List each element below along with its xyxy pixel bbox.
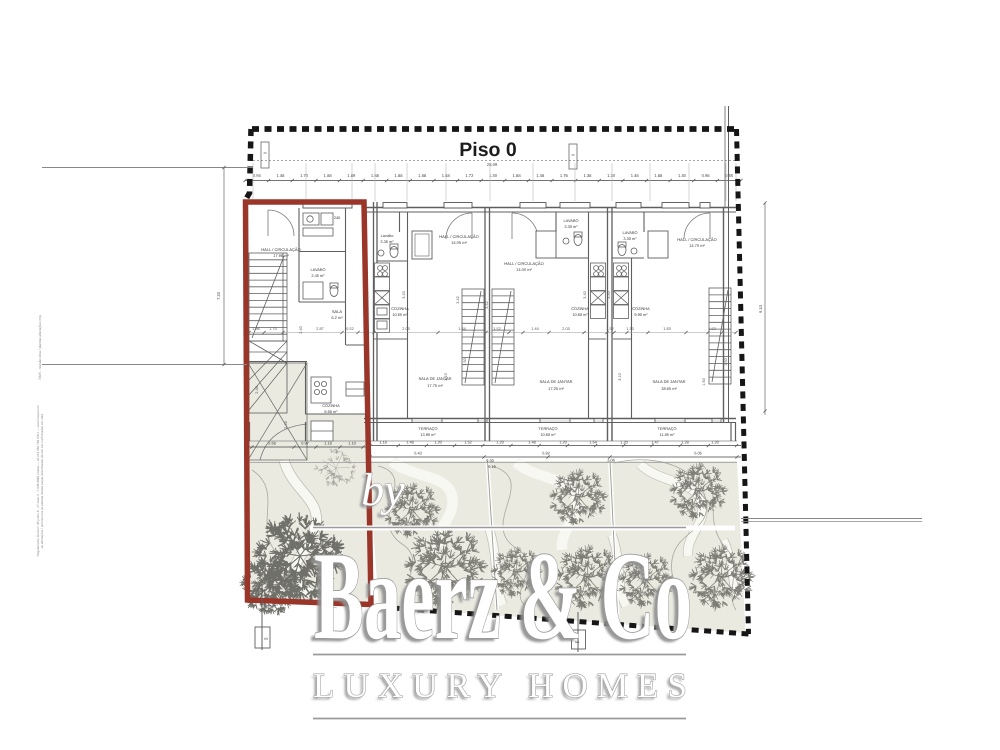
svg-text:9.16: 9.16 [488,464,496,469]
svg-text:1.18: 1.18 [324,441,332,446]
svg-text:1.30: 1.30 [626,327,633,331]
svg-text:3.10: 3.10 [444,373,448,380]
svg-text:LAVABO: LAVABO [564,218,579,223]
svg-text:1.88: 1.88 [395,173,404,178]
svg-text:3.40: 3.40 [607,291,611,298]
svg-text:Baerz & Co: Baerz & Co [314,527,692,666]
svg-text:LAVABO: LAVABO [623,230,638,235]
svg-text:1.20: 1.20 [496,440,504,445]
svg-text:0.52: 0.52 [346,327,353,331]
svg-text:HALL / CIRCULAÇÃO: HALL / CIRCULAÇÃO [504,261,543,266]
svg-text:1.54: 1.54 [589,440,597,445]
svg-text:1.28: 1.28 [681,440,689,445]
svg-text:m: m [572,153,575,157]
svg-text:3.36 m²: 3.36 m² [380,239,394,244]
svg-text:1.30: 1.30 [489,173,498,178]
svg-text:1.38: 1.38 [583,173,592,178]
svg-text:3.40: 3.40 [583,291,587,298]
svg-text:1.47: 1.47 [651,440,659,445]
svg-text:1.88: 1.88 [324,173,333,178]
svg-text:1.83: 1.83 [663,327,670,331]
svg-text:1.20: 1.20 [711,440,719,445]
svg-text:3.42: 3.42 [456,296,460,303]
svg-text:VV: VV [264,637,269,641]
svg-text:14.05 m²: 14.05 m² [451,240,467,245]
svg-text:1.48: 1.48 [536,173,545,178]
svg-text:1.44: 1.44 [458,327,465,331]
svg-text:Lavabo: Lavabo [381,233,394,238]
svg-text:TERRAÇO: TERRAÇO [418,426,437,431]
svg-text:1.89: 1.89 [347,173,356,178]
svg-text:2.45 m²: 2.45 m² [311,273,325,278]
svg-text:as alterações / pormenores às: as alterações / pormenores às plantas de… [40,413,44,548]
svg-text:9.90 m²: 9.90 m² [634,312,648,317]
svg-text:10.60 m²: 10.60 m² [540,432,556,437]
svg-text:2.87: 2.87 [316,327,323,331]
svg-text:1.70: 1.70 [300,173,309,178]
svg-text:3.30 m²: 3.30 m² [623,236,637,241]
svg-text:3.42: 3.42 [485,301,489,308]
svg-text:1.48: 1.48 [631,173,640,178]
svg-text:1.48: 1.48 [406,440,414,445]
svg-text:1.72: 1.72 [465,173,474,178]
svg-text:RMS - revisão obra / plantas a: RMS - revisão obra / plantas alterações … [38,314,42,379]
svg-text:0.97: 0.97 [301,441,309,446]
svg-text:13.90 m²: 13.90 m² [420,432,436,437]
svg-text:1.88: 1.88 [513,173,522,178]
svg-text:1.52: 1.52 [708,327,715,331]
svg-text:1.48: 1.48 [528,440,536,445]
svg-text:3.30 m²: 3.30 m² [564,224,578,229]
svg-text:by: by [361,464,405,515]
svg-text:2.48: 2.48 [255,386,259,393]
svg-text:Piso 0: Piso 0 [459,139,517,161]
svg-text:0.98: 0.98 [702,173,711,178]
svg-text:8.68 m²: 8.68 m² [324,409,338,414]
svg-text:10.65 m²: 10.65 m² [392,312,408,317]
svg-text:3.10: 3.10 [618,373,622,380]
svg-text:14.70 m²: 14.70 m² [689,243,705,248]
svg-text:COZINHA: COZINHA [322,403,340,408]
svg-text:1.70: 1.70 [269,327,276,331]
svg-text:28.09: 28.09 [487,162,498,167]
svg-text:1.44: 1.44 [531,327,538,331]
svg-text:1.20: 1.20 [620,440,628,445]
svg-text:3.06: 3.06 [607,458,615,463]
svg-text:HALL / CIRCULAÇÃO: HALL / CIRCULAÇÃO [261,247,300,252]
svg-text:0.94: 0.94 [253,173,262,178]
svg-text:5.05: 5.05 [694,451,702,456]
svg-text:COZINHA: COZINHA [391,306,409,311]
svg-text:2.40: 2.40 [299,326,303,333]
svg-text:1.50: 1.50 [724,358,728,365]
svg-text:1.30: 1.30 [607,173,616,178]
svg-text:7.33: 7.33 [216,291,221,300]
svg-text:6.2 m²: 6.2 m² [331,315,343,320]
svg-text:9.10: 9.10 [758,304,763,313]
svg-text:TERRAÇO: TERRAÇO [538,426,557,431]
svg-text:1.20: 1.20 [434,440,442,445]
svg-text:1.88: 1.88 [418,173,427,178]
svg-text:1.50: 1.50 [702,378,706,385]
svg-text:1.88: 1.88 [654,173,663,178]
svg-text:2.03: 2.03 [562,327,569,331]
svg-text:1.10: 1.10 [348,441,356,446]
svg-text:1.52: 1.52 [606,327,613,331]
svg-text:2.68: 2.68 [268,441,276,446]
svg-text:1.50: 1.50 [463,358,467,365]
svg-text:TERRAÇO: TERRAÇO [657,426,676,431]
svg-text:1.52: 1.52 [464,440,472,445]
svg-text:5.92: 5.92 [542,451,550,456]
svg-text:1.20: 1.20 [559,440,567,445]
svg-text:1.36: 1.36 [252,327,259,331]
svg-text:SALA DE JANTAR: SALA DE JANTAR [539,379,572,384]
svg-text:1.76: 1.76 [560,173,569,178]
svg-text:3.40: 3.40 [402,291,406,298]
svg-text:0.55: 0.55 [725,173,734,178]
svg-text:1.30: 1.30 [678,173,687,178]
svg-text:5.43: 5.43 [414,451,422,456]
svg-text:HALL / CIRCULAÇÃO: HALL / CIRCULAÇÃO [439,234,478,239]
svg-text:LAVABO: LAVABO [311,267,326,272]
svg-text:2.03: 2.03 [402,327,409,331]
svg-text:SALA: SALA [332,309,343,314]
svg-text:10.60 m²: 10.60 m² [572,312,588,317]
svg-text:1.18: 1.18 [379,440,387,445]
svg-text:11.85 m²: 11.85 m² [659,432,675,437]
svg-text:COZINHA: COZINHA [632,306,650,311]
svg-text:18.65 m²: 18.65 m² [661,386,677,391]
svg-text:m: m [264,151,267,155]
svg-text:COZINHA: COZINHA [571,306,589,311]
svg-text:14.00 m²: 14.00 m² [516,267,532,272]
svg-text:SALA DE JANTAR: SALA DE JANTAR [652,379,685,384]
svg-text:2.46: 2.46 [284,421,288,428]
svg-text:1.48: 1.48 [276,173,285,178]
svg-text:17.75 m²: 17.75 m² [427,383,443,388]
svg-text:17.25 m²: 17.25 m² [548,386,564,391]
svg-text:1.52: 1.52 [493,327,500,331]
svg-text:240: 240 [334,216,340,220]
svg-text:HALL / CIRCULAÇÃO: HALL / CIRCULAÇÃO [677,237,716,242]
